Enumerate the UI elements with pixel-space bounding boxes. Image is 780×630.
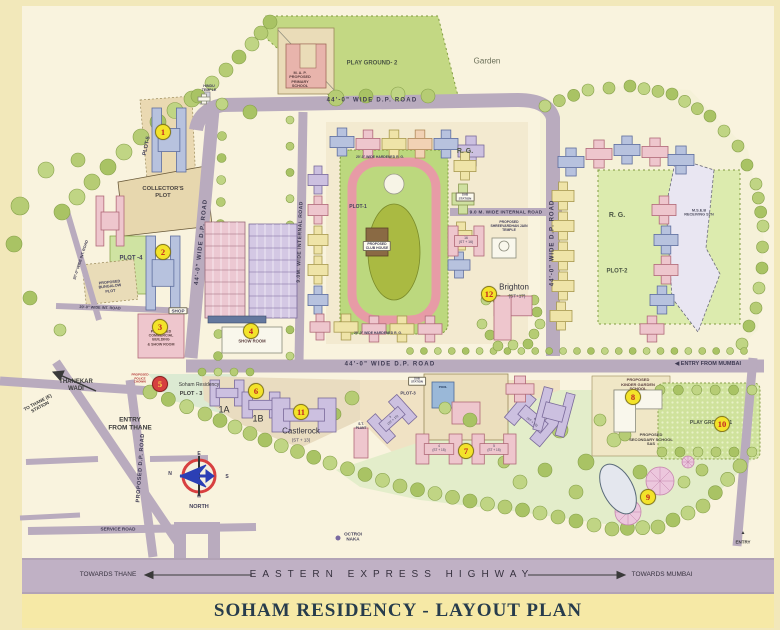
tree [198,368,206,376]
tree [219,63,233,77]
tree [551,510,565,524]
tree [553,95,565,107]
title-band: SOHAM RESIDENCY - LAYOUT PLAN [22,594,774,628]
tree [750,178,762,190]
tree [286,116,294,124]
tree [587,518,601,532]
tree [582,84,594,96]
tree [341,462,355,476]
tree [711,447,721,457]
tree [539,100,551,112]
tree [678,476,690,488]
tree [629,348,636,355]
tree [671,348,678,355]
tree [685,348,692,355]
tree [633,465,647,479]
tree [232,50,246,64]
tree [721,472,735,486]
tree [481,295,491,305]
tree [569,514,583,528]
tree [657,348,664,355]
tree [446,490,460,504]
octroi-naka-dot [336,536,341,541]
tree [651,520,665,534]
tree [428,487,442,501]
tree [718,125,730,137]
highway-band [22,558,774,594]
tree [493,341,503,351]
tree [574,348,581,355]
tree [393,479,407,493]
tree [216,198,225,207]
tree [216,98,228,110]
tree [246,368,254,376]
tree [245,37,259,51]
club-house-building [366,228,388,256]
mandala-tree [646,467,674,495]
tree [180,400,194,414]
tree [696,499,710,513]
tree [752,192,764,204]
tree [345,391,359,405]
tree [420,348,427,355]
tree [286,142,294,150]
tree [323,456,337,470]
tree [359,89,373,103]
tree [477,319,487,329]
tree [439,402,451,414]
shop-grid [205,222,245,318]
tree [214,330,223,339]
tree [6,236,22,252]
tree [696,464,708,476]
tree [358,468,372,482]
tree [133,129,149,145]
tree [692,385,702,395]
tree [704,110,716,122]
tree [411,483,425,497]
tree [601,348,608,355]
tree [605,522,619,536]
tree [286,352,294,360]
tree [213,414,227,428]
tree [681,506,695,520]
layout-plan-page: 44'-0" WIDE D.P. ROAD44'-0" WIDE D.P. RO… [0,0,780,630]
tree [463,494,477,508]
tree [657,447,667,457]
building [354,428,368,458]
tree [286,168,294,176]
tree [747,385,757,395]
tree [578,454,594,470]
tree [666,88,678,100]
tree [205,76,219,90]
tree [161,392,175,406]
tree [732,140,744,152]
tree [54,324,66,336]
tree [11,197,29,215]
tree [624,80,636,92]
tree [756,262,768,274]
tree [638,83,650,95]
tree [691,103,703,115]
tree [518,348,525,355]
tree [274,439,288,453]
tree [757,241,769,253]
tree [643,348,650,355]
tree [603,82,615,94]
tree [594,414,606,426]
tree [532,348,539,355]
tree [652,85,664,97]
tree [328,90,344,106]
shop-strip [208,316,266,323]
tree [263,15,277,29]
tree [532,307,542,317]
tree [228,420,242,434]
tree [675,447,685,457]
tree [498,500,512,514]
tree [729,385,739,395]
tree [699,348,706,355]
tree [116,144,132,160]
tree [448,348,455,355]
tree [69,189,85,205]
tree [747,447,757,457]
tree [693,447,703,457]
tree [508,340,518,350]
tree [391,87,405,101]
page-title: SOHAM RESIDENCY - LAYOUT PLAN [214,600,582,622]
tree [143,385,157,399]
tree [743,320,755,332]
tree [523,339,533,349]
tree [535,319,545,329]
tree [307,450,321,464]
tree [560,348,567,355]
tree [38,162,54,178]
tree [587,348,594,355]
shop-grid [249,224,297,318]
tree [615,348,622,355]
tree [481,497,495,511]
tree [243,427,257,441]
tree [217,154,226,163]
tree [286,195,294,203]
tree [753,282,765,294]
tree [84,174,100,190]
tree [741,348,748,355]
tree [217,176,226,185]
tree [434,348,441,355]
tree [214,368,222,376]
tree [463,413,477,427]
tree [421,89,435,103]
tree [636,521,650,535]
tree [291,445,305,459]
tree [254,26,268,40]
building [138,314,184,358]
tree [666,513,680,527]
tree [729,447,739,457]
tree [568,89,580,101]
tree [462,348,469,355]
tree [407,348,414,355]
tree [23,291,37,305]
tree [710,385,720,395]
tree [218,132,227,141]
tree [733,459,747,473]
mandala-tree [682,456,694,468]
tree [569,485,583,499]
tree [485,330,495,340]
tree [516,503,530,517]
tree [376,473,390,487]
tree [258,433,272,447]
tree [750,302,762,314]
tree [54,204,70,220]
tree [741,159,753,171]
tree [214,352,223,361]
road-internal-vertical [299,112,303,362]
tree [755,206,767,218]
layout-plan-map [0,0,780,630]
tree [286,326,294,334]
tree [230,368,238,376]
tree [100,159,116,175]
tree [727,348,734,355]
tree [679,95,691,107]
building [222,327,282,353]
tree [713,348,720,355]
tree [476,348,483,355]
tree [708,486,722,500]
tree [533,506,547,520]
tree [529,329,539,339]
tree [757,220,769,232]
tree [513,475,527,489]
tree [243,105,257,119]
tree [673,385,683,395]
tree [538,463,552,477]
road-service [28,527,256,531]
tree [198,407,212,421]
tree [546,348,553,355]
tree [71,153,85,167]
